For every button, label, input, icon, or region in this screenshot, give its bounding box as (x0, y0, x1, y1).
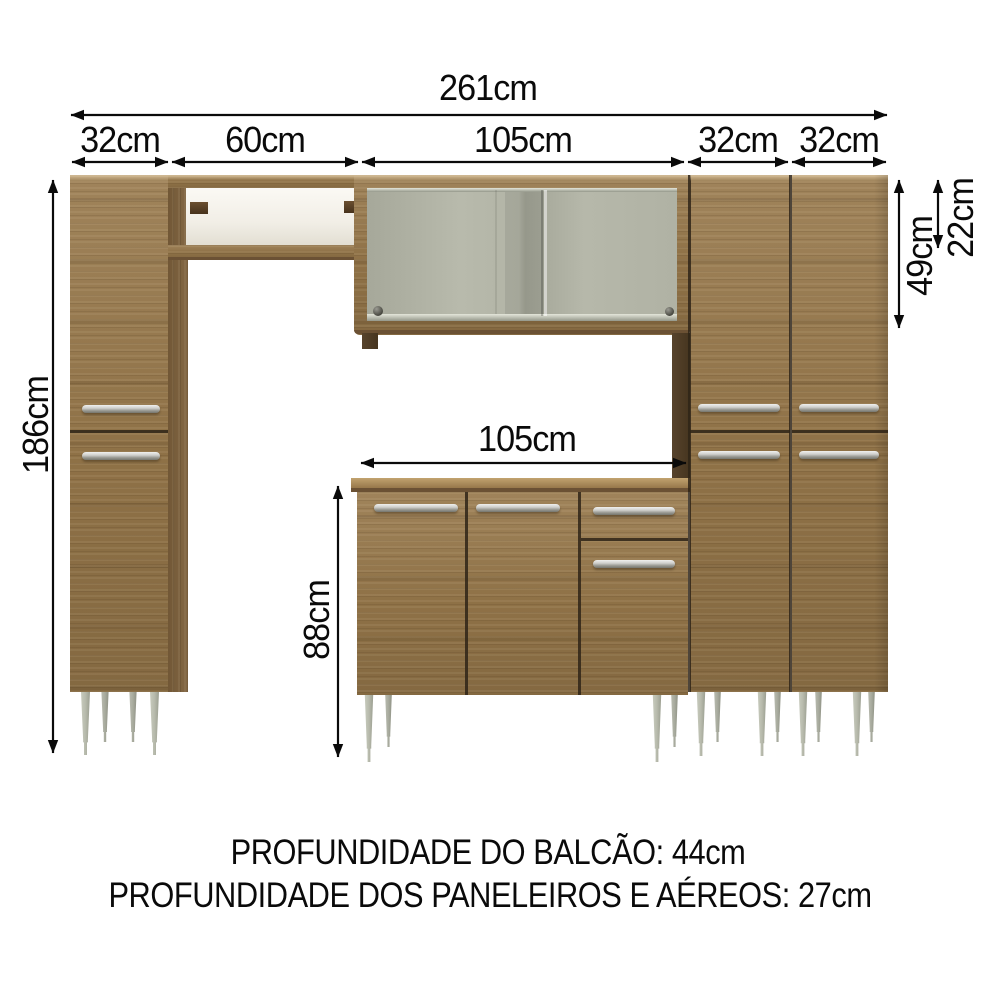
footer-depth-counter: PROFUNDIDADE DO BALCÃO: 44cm (231, 833, 746, 873)
label-counter-height: 88cm (296, 580, 338, 660)
label-total-width: 261cm (439, 67, 537, 109)
label-segment-5: 32cm (799, 119, 879, 161)
label-segment-4: 32cm (698, 119, 778, 161)
label-segment-3: 105cm (474, 119, 572, 161)
label-segment-1: 32cm (80, 119, 160, 161)
label-counter-width: 105cm (478, 418, 576, 460)
kitchen-cabinet-dimension-diagram: 261cm 32cm 60cm 105cm 32cm 32cm 186cm 49… (0, 0, 1000, 1000)
label-aereo-height: 49cm (899, 216, 941, 296)
label-left-height: 186cm (15, 376, 57, 474)
label-segment-2: 60cm (225, 119, 305, 161)
footer-depth-pantries: PROFUNDIDADE DOS PANELEIROS E AÉREOS: 27… (108, 876, 871, 916)
label-niche-height: 22cm (940, 178, 982, 258)
